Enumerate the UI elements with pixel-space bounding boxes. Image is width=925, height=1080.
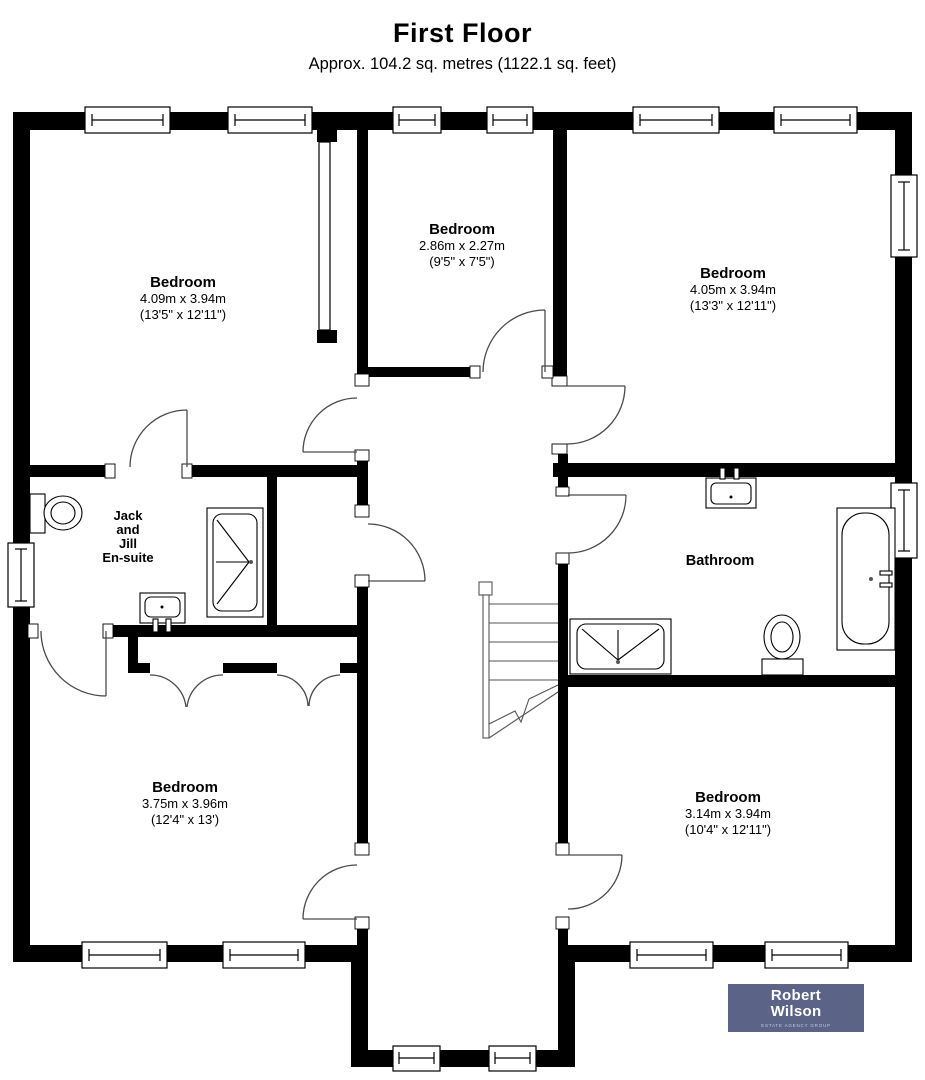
room-label-ensuite: Jack and Jill En-suite — [102, 509, 153, 565]
door-swing — [568, 495, 626, 553]
wall — [553, 130, 567, 378]
window — [489, 1046, 536, 1071]
window — [82, 942, 167, 968]
closet-double-doors — [150, 675, 340, 707]
window — [85, 107, 170, 133]
wall — [317, 130, 337, 142]
window — [8, 543, 34, 607]
window — [633, 107, 719, 133]
window — [487, 107, 533, 133]
toilet-fixture — [30, 494, 82, 533]
shower-fixture — [207, 508, 263, 617]
staircase — [479, 582, 558, 738]
window — [891, 175, 917, 257]
fixtures — [30, 468, 895, 675]
built-in-cupboard — [319, 142, 330, 330]
wall — [13, 112, 30, 962]
door-swing — [568, 855, 622, 909]
agency-logo: Robert Wilson ESTATE AGENCY GROUP — [728, 984, 864, 1032]
stair-railing — [483, 595, 489, 738]
wall — [223, 663, 277, 673]
wall — [192, 465, 357, 477]
window — [223, 942, 305, 968]
door-swing — [303, 865, 357, 919]
wall — [558, 675, 912, 687]
room-label-bedroom-bottom-left: Bedroom 3.75m x 3.96m (12'4" x 13') — [142, 779, 228, 828]
door-swing — [303, 398, 357, 452]
room-dims-metric: 3.75m x 3.96m — [142, 796, 228, 812]
floor-plan: First Floor Approx. 104.2 sq. metres (11… — [0, 0, 925, 1080]
room-name-line: Jack — [102, 509, 153, 523]
window — [630, 942, 713, 968]
door-swing — [483, 310, 545, 372]
wall — [128, 637, 138, 673]
wall — [351, 945, 368, 1067]
toilet-fixture — [762, 615, 803, 675]
doors — [41, 310, 626, 919]
room-dims-imperial: (12'4" x 13') — [142, 812, 228, 828]
wall — [357, 460, 368, 507]
room-name: Bedroom — [140, 274, 226, 291]
window — [774, 107, 857, 133]
agency-tagline: ESTATE AGENCY GROUP — [761, 1023, 831, 1028]
room-name-line: Jill — [102, 537, 153, 551]
wall — [340, 663, 357, 673]
room-name: Bedroom — [685, 789, 771, 806]
room-name: Bedroom — [419, 221, 505, 238]
room-dims-imperial: (10'4" x 12'11") — [685, 822, 771, 838]
door-swing — [368, 524, 425, 581]
agency-name-line2: Wilson — [771, 1004, 822, 1020]
wall — [357, 587, 368, 845]
wall — [368, 367, 470, 377]
room-label-bathroom: Bathroom — [686, 553, 754, 569]
room-name: Bedroom — [142, 779, 228, 796]
room-name-line: En-suite — [102, 551, 153, 565]
room-dims-imperial: (9'5" x 7'5") — [419, 254, 505, 270]
room-dims-metric: 2.86m x 2.27m — [419, 238, 505, 254]
wall — [351, 1050, 575, 1067]
room-name: Bathroom — [686, 553, 754, 569]
room-name-line: and — [102, 523, 153, 537]
wall — [317, 330, 337, 343]
wall — [357, 929, 368, 945]
room-dims-metric: 4.05m x 3.94m — [690, 282, 776, 298]
room-dims-metric: 4.09m x 3.94m — [140, 291, 226, 307]
newel-post — [479, 582, 492, 595]
wall — [558, 564, 568, 845]
wall — [13, 945, 358, 962]
room-dims-metric: 3.14m x 3.94m — [685, 806, 771, 822]
room-dims-imperial: (13'5" x 12'11") — [140, 307, 226, 323]
room-label-bedroom-middle: Bedroom 2.86m x 2.27m (9'5" x 7'5") — [419, 221, 505, 270]
door-swing — [130, 410, 187, 467]
bathtub-fixture — [837, 508, 895, 650]
window — [393, 107, 441, 133]
wall — [558, 945, 575, 1067]
room-label-bedroom-top-left: Bedroom 4.09m x 3.94m (13'5" x 12'11") — [140, 274, 226, 323]
wall — [138, 663, 150, 673]
wall — [267, 477, 277, 637]
window — [765, 942, 848, 968]
room-label-bedroom-bottom-right: Bedroom 3.14m x 3.94m (10'4" x 12'11") — [685, 789, 771, 838]
room-dims-imperial: (13'3" x 12'11") — [690, 298, 776, 314]
wall — [28, 465, 105, 477]
door-swing — [567, 386, 625, 444]
shower-fixture — [570, 619, 671, 674]
wall — [558, 929, 568, 945]
door-swing — [41, 631, 106, 696]
window — [393, 1046, 440, 1071]
wall — [113, 625, 357, 637]
wall — [553, 463, 912, 477]
room-name: Bedroom — [690, 265, 776, 282]
room-label-bedroom-top-right: Bedroom 4.05m x 3.94m (13'3" x 12'11") — [690, 265, 776, 314]
wall — [357, 130, 368, 375]
wall — [558, 945, 912, 962]
window — [228, 107, 312, 133]
agency-name-line1: Robert — [771, 988, 821, 1004]
